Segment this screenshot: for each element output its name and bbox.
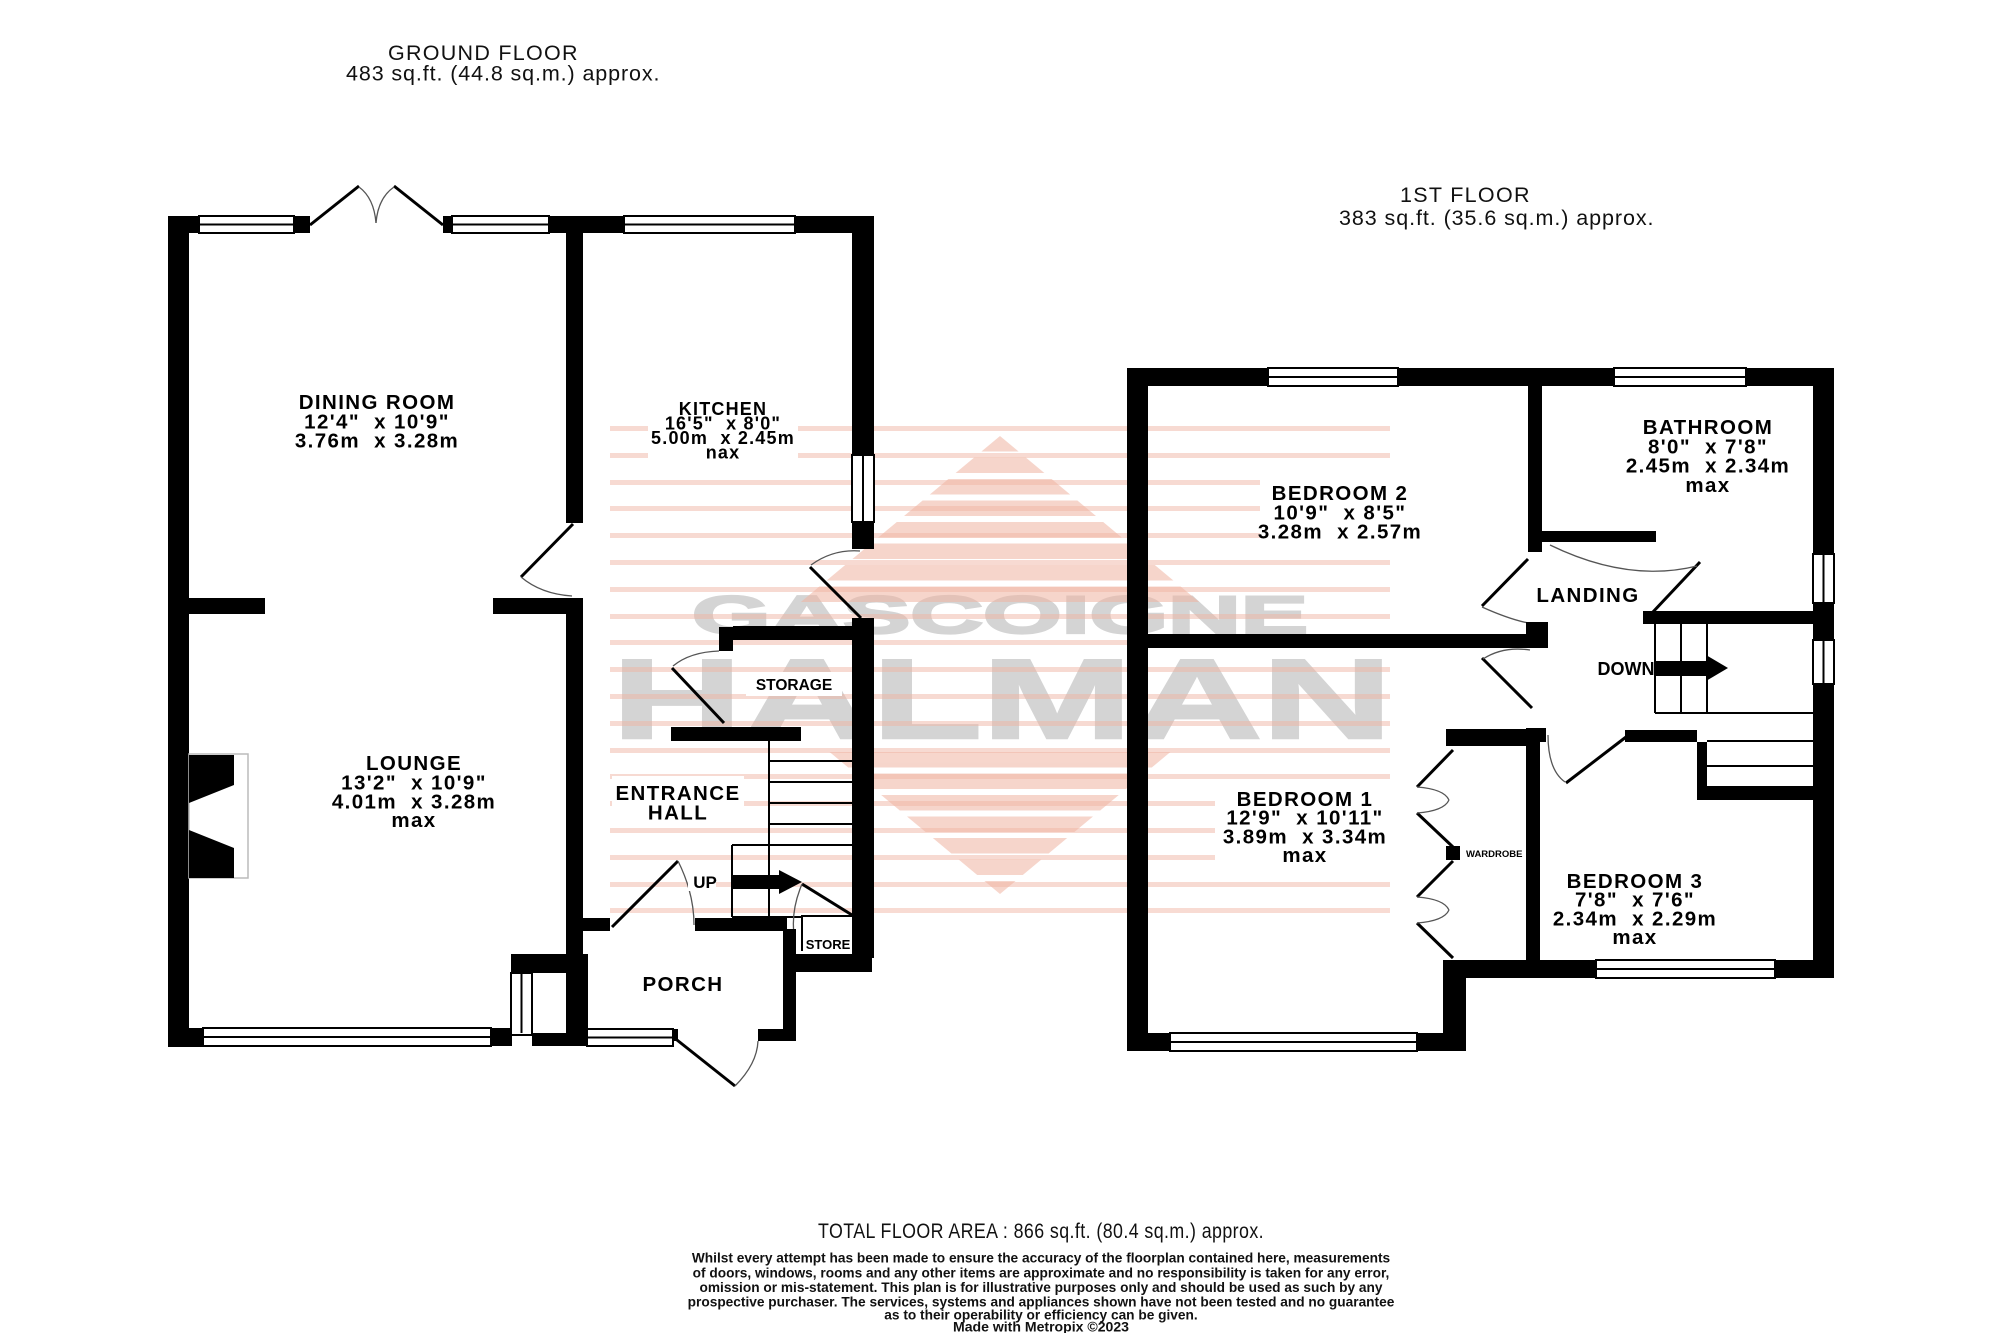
svg-text:max: max xyxy=(1685,474,1730,497)
svg-text:max: max xyxy=(391,809,436,832)
svg-text:nax: nax xyxy=(706,443,741,463)
svg-text:1ST FLOOR: 1ST FLOOR xyxy=(1400,183,1530,207)
svg-text:max: max xyxy=(1282,844,1327,867)
svg-text:STORE: STORE xyxy=(806,937,851,952)
svg-text:Made with Metropix ©2023: Made with Metropix ©2023 xyxy=(953,1320,1129,1333)
svg-text:max: max xyxy=(1612,926,1657,949)
svg-text:3.76m x 3.28m: 3.76m x 3.28m xyxy=(295,430,459,453)
svg-text:STORAGE: STORAGE xyxy=(756,677,832,694)
svg-text:DOWN: DOWN xyxy=(1598,659,1655,679)
svg-text:Whilst every attempt has been: Whilst every attempt has been made to en… xyxy=(692,1251,1391,1266)
svg-text:of doors, windows, rooms and a: of doors, windows, rooms and any other i… xyxy=(693,1266,1390,1281)
svg-text:PORCH: PORCH xyxy=(642,973,723,996)
svg-text:WARDROBE: WARDROBE xyxy=(1466,849,1522,860)
svg-text:3.28m x 2.57m: 3.28m x 2.57m xyxy=(1258,521,1422,544)
svg-text:HALL: HALL xyxy=(648,802,708,825)
svg-text:TOTAL FLOOR AREA : 866 sq.ft.: TOTAL FLOOR AREA : 866 sq.ft. (80.4 sq.m… xyxy=(818,1219,1264,1243)
svg-text:LANDING: LANDING xyxy=(1536,584,1639,607)
svg-text:383 sq.ft. (35.6 sq.m.) approx: 383 sq.ft. (35.6 sq.m.) approx. xyxy=(1339,206,1654,230)
svg-text:483 sq.ft. (44.8 sq.m.) approx: 483 sq.ft. (44.8 sq.m.) approx. xyxy=(346,62,660,86)
svg-text:UP: UP xyxy=(693,873,717,892)
svg-text:omission or mis-statement. Thi: omission or mis-statement. This plan is … xyxy=(699,1280,1382,1295)
